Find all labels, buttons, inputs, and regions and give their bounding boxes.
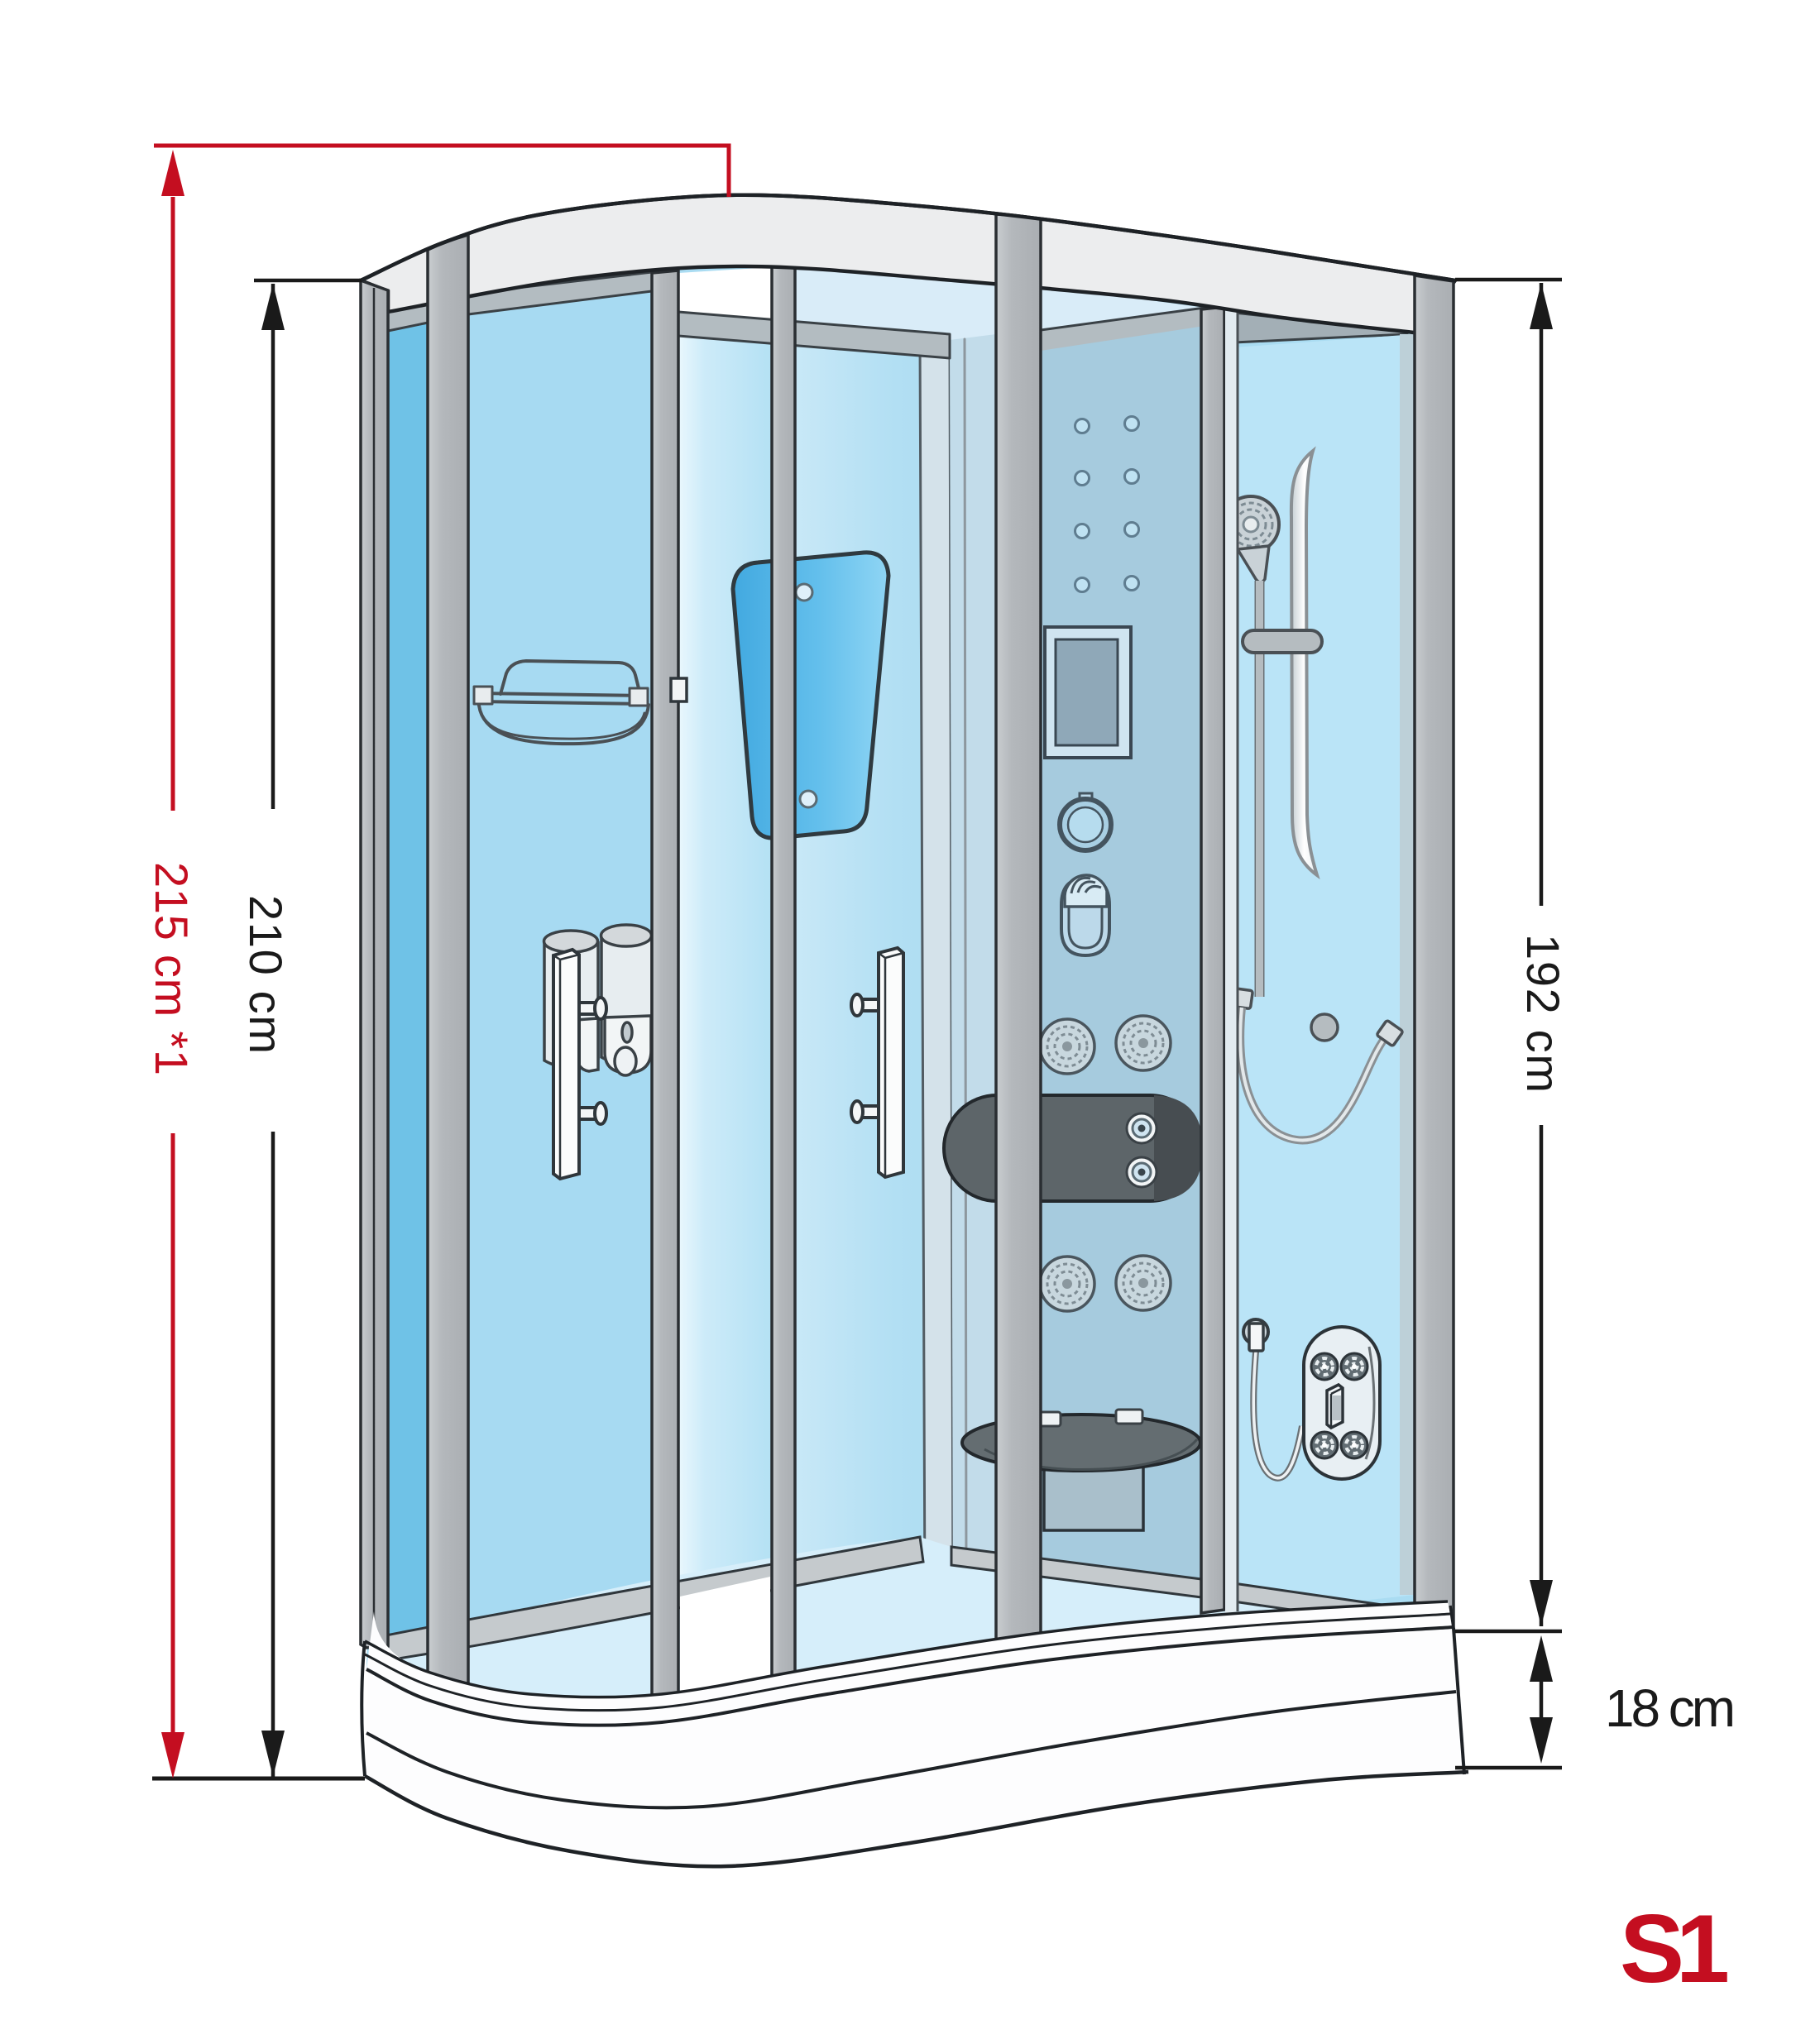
svg-text:210 cm: 210 cm: [240, 895, 292, 1054]
svg-text:S1: S1: [1620, 1894, 1730, 2003]
svg-text:192 cm: 192 cm: [1517, 934, 1569, 1093]
svg-text:18 cm: 18 cm: [1605, 1678, 1736, 1738]
svg-text:215 cm *1: 215 cm *1: [146, 862, 198, 1075]
